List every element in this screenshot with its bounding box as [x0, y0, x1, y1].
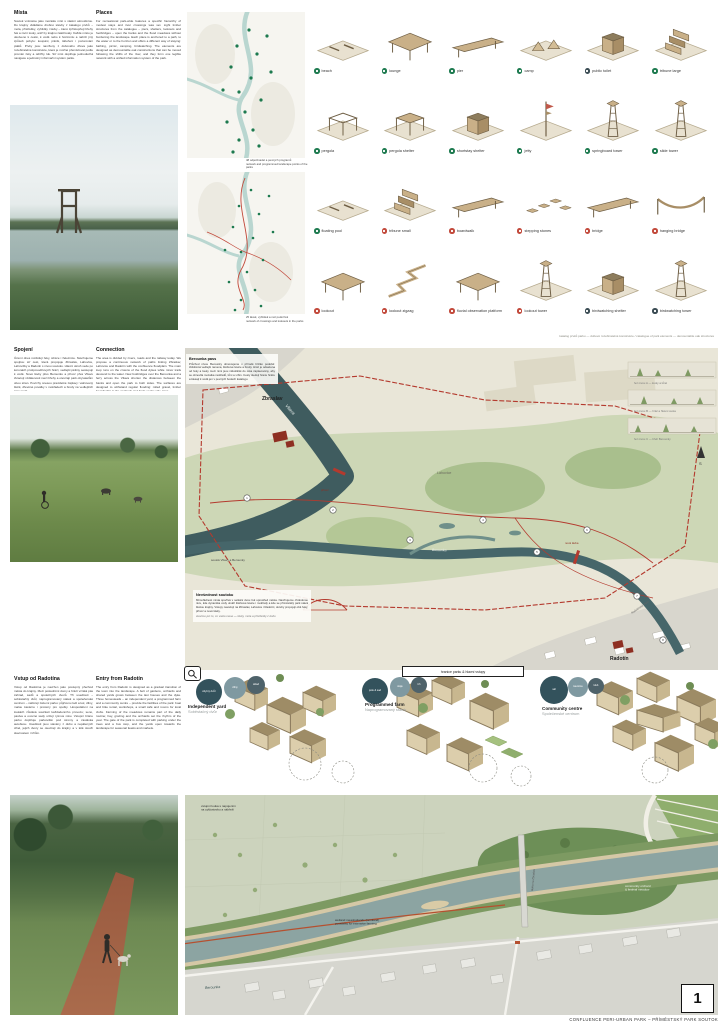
catalog-item: slide tower: [648, 90, 714, 170]
catalog-item-label: lookout zigzag: [389, 309, 413, 313]
section-entry-en: Entry from Radotín The entry from Radotí…: [96, 676, 181, 788]
body-entry: The entry from Radotín is designed as a …: [96, 685, 181, 731]
body-connection: The area is divided by rivers, roads and…: [96, 356, 181, 392]
catalog-item: pergola: [310, 90, 376, 170]
program-dot-icon: [257, 144, 260, 147]
heading-places: Places: [96, 10, 181, 16]
profile-caption: řez nivou B — hráz a hlavní cesta: [634, 409, 676, 413]
catalog-item: lookout zigzag: [378, 250, 444, 330]
program-bubble: kavárna: [568, 677, 588, 697]
map-label: Radotín: [610, 656, 629, 662]
program-dot-icon: [221, 88, 224, 91]
catalog-item: jetty: [513, 90, 579, 170]
catalog-item-label: camp: [524, 69, 533, 73]
profile-caption: řez nivou C — břeh Berounky: [634, 437, 671, 441]
jetty-icon: [513, 90, 579, 148]
heading-spojeni: Spojení: [14, 347, 93, 353]
program-dot-icon: [247, 28, 250, 31]
shortstay-shelter-icon: [445, 90, 511, 148]
map-label: nová lávka: [565, 541, 579, 545]
catalog-item: camp: [513, 10, 579, 90]
category-dot-icon: [585, 228, 591, 234]
minimap-programs: [187, 12, 305, 158]
category-dot-icon: [652, 148, 658, 154]
category-dot-icon: [382, 148, 388, 154]
catalog-item-label: bridge: [592, 229, 603, 233]
heading-vstup: Vstup od Radotína: [14, 676, 93, 682]
tribune-large-icon: [648, 10, 714, 68]
catalog-item: public toilet: [581, 10, 647, 90]
section-places-en: Places For recreational park-wide featur…: [96, 10, 181, 102]
catalog-item: boardwalk: [445, 170, 511, 250]
category-dot-icon: [449, 148, 455, 154]
catalog-item: tribune large: [648, 10, 714, 90]
competition-board: Místa Soutok vnímáme jako mozaiku míst s…: [0, 0, 724, 1024]
photo-lake-diving-tower: [10, 105, 178, 330]
aerial-label: community orchard& festival meadow: [625, 884, 651, 891]
catalog-item-label: slide tower: [660, 149, 678, 153]
catalog-item: hanging bridge: [648, 170, 714, 250]
catalog-item: pergola shelter: [378, 90, 444, 170]
element-catalog: beachloungepiercamppublic toilettribune …: [310, 10, 714, 330]
catalog-item: floating pool: [310, 170, 376, 250]
tribune-small-icon: [378, 170, 444, 228]
aerial-label: wetland meadowlands (farmland)possibilit…: [335, 918, 379, 925]
category-dot-icon: [449, 68, 455, 74]
catalog-item-label: fluvial observation platform: [457, 309, 502, 313]
catalog-item-label: birdwatching tower: [660, 309, 692, 313]
catalog-item: lounge: [378, 10, 444, 90]
cluster-title-block: Independent yardSoběstačný dvůr: [188, 704, 226, 714]
minimap-routes: [187, 172, 305, 314]
map-label: Lahovice: [437, 471, 451, 475]
birdwatching-tower-icon: [648, 250, 714, 308]
category-dot-icon: [585, 68, 591, 74]
svg-text:S: S: [699, 461, 702, 466]
catalog-item-label: hanging bridge: [660, 229, 685, 233]
catalog-item-label: lounge: [389, 69, 400, 73]
bridge-icon: [581, 170, 647, 228]
catalog-item: bridge: [581, 170, 647, 250]
catalog-item-label: beach: [322, 69, 332, 73]
hanging-bridge-icon: [648, 170, 714, 228]
category-dot-icon: [382, 308, 388, 314]
category-dot-icon: [652, 228, 658, 234]
category-dot-icon: [449, 228, 455, 234]
photo-red-path-dog-walk: [10, 795, 178, 1015]
profile-caption: řez nivou A — louky a tůně: [634, 381, 668, 385]
floating-pool-icon: [310, 170, 376, 228]
public-toilet-icon: [581, 10, 647, 68]
map-label: přívoz: [321, 488, 329, 492]
program-dot-icon: [259, 98, 262, 101]
catalog-item-label: pier: [457, 69, 463, 73]
catalog-item-label: jetty: [524, 149, 531, 153]
catalog-item-label: public toilet: [592, 69, 611, 73]
program-dot-icon: [235, 44, 238, 47]
panel-number: 1: [681, 984, 714, 1013]
body-spojeni: Území dnes rozdělují řeky, silnice i žel…: [14, 356, 93, 392]
category-dot-icon: [449, 308, 455, 314]
catalog-item: birdwatching tower: [648, 250, 714, 330]
magnifier-icon: [184, 666, 201, 681]
fluvial-observation-platform-icon: [445, 250, 511, 308]
body-places: For recreational park-wide features a sp…: [96, 19, 181, 61]
minimap-programs-caption: 48 odpočívadel a pevných programůnetwork…: [246, 159, 308, 170]
boardwalk-icon: [445, 170, 511, 228]
program-dot-icon: [249, 76, 252, 79]
lookout-zigzag-icon: [378, 250, 444, 308]
minimap-routes-caption: 25 lávek, vyhlídek a mol podél řeknetwor…: [246, 316, 308, 323]
pergola-icon: [310, 90, 376, 148]
category-dot-icon: [517, 148, 523, 154]
catalog-item-label: floating pool: [322, 229, 342, 233]
map-label: soutok Vltavy a Berounky: [211, 558, 245, 562]
slide-tower-icon: [648, 90, 714, 148]
catalog-caption: katalog prvků parku — dubové rozebíratel…: [420, 334, 714, 338]
program-dot-icon: [231, 150, 234, 153]
map-note-soutok: Nevšednost soutoku Mimořádnost místa spo…: [193, 590, 311, 622]
catalog-item: springboard tower: [581, 90, 647, 170]
category-dot-icon: [314, 148, 320, 154]
catalog-item-label: boardwalk: [457, 229, 474, 233]
lounge-icon: [378, 10, 444, 68]
category-dot-icon: [314, 308, 320, 314]
map-label: Zbraslav: [262, 396, 283, 402]
catalog-item-label: pergola: [322, 149, 335, 153]
catalog-item-label: tribune large: [660, 69, 681, 73]
program-bubble: stáje: [390, 677, 410, 697]
section-places-cs: Místa Soutok vnímáme jako mozaiku míst s…: [14, 10, 93, 102]
catalog-item: fluvial observation platform: [445, 250, 511, 330]
catalog-item-label: stepping stones: [524, 229, 551, 233]
lookout-tower-icon: [513, 250, 579, 308]
heading-mista: Místa: [14, 10, 93, 16]
pier-icon: [445, 10, 511, 68]
map-label: Berounka: [432, 548, 447, 552]
catalog-item-label: springboard tower: [592, 149, 622, 153]
footer-title: CONFLUENCE PERI-URBAN PARK – PŘÍMĚSTSKÝ …: [380, 1017, 718, 1022]
cluster-subtitle: Naprogramovaný statek: [365, 707, 406, 712]
program-bubble: obytný dvůr: [196, 679, 222, 705]
catalog-item: lookout tower: [513, 250, 579, 330]
map-note-berounka-pass: Berounka pass Průchod nivou Berounky obn…: [186, 354, 278, 384]
program-dot-icon: [237, 138, 240, 141]
catalog-item: pier: [445, 10, 511, 90]
beach-icon: [310, 10, 376, 68]
program-bubble: sklad: [247, 676, 265, 694]
catalog-item: stepping stones: [513, 170, 579, 250]
stepping-stones-icon: [513, 170, 579, 228]
program-bubble: dílny: [224, 677, 246, 699]
camp-icon: [513, 10, 579, 68]
program-dot-icon: [251, 128, 254, 131]
walker-dog-silhouette: [10, 795, 178, 1015]
section-connection-cs: Spojení Území dnes rozdělují řeky, silni…: [14, 347, 93, 391]
catalog-item-label: lookout tower: [524, 309, 547, 313]
category-dot-icon: [382, 68, 388, 74]
category-dot-icon: [517, 308, 523, 314]
program-dot-icon: [229, 65, 232, 68]
catalog-item: shortstay shelter: [445, 90, 511, 170]
catalog-item-label: lookout: [322, 309, 334, 313]
map-legend-badge: hranice parku & hlavní vstupy: [402, 666, 524, 677]
catalog-item-label: tribune small: [389, 229, 411, 233]
cluster-subtitle: Společenské centrum: [542, 711, 582, 716]
body-vstup: Vstup od Radotína je navržen jako postup…: [14, 685, 93, 735]
pergola-shelter-icon: [378, 90, 444, 148]
diving-tower-silhouette: [10, 105, 178, 330]
body-mista: Soutok vnímáme jako mozaiku míst s vlast…: [14, 19, 93, 61]
category-dot-icon: [382, 228, 388, 234]
catalog-item-label: birdwatching shelter: [592, 309, 626, 313]
program-dot-icon: [225, 120, 228, 123]
lookout-icon: [310, 250, 376, 308]
program-bubble: trh: [411, 677, 427, 693]
program-bubble: klub: [588, 678, 604, 694]
category-dot-icon: [585, 308, 591, 314]
heading-entry: Entry from Radotín: [96, 676, 181, 682]
section-connection-en: Connection The area is divided by rivers…: [96, 347, 181, 391]
aerial-plan: vstupní louka s napojenímna cyklostezku …: [185, 795, 718, 1015]
program-dot-icon: [269, 70, 272, 73]
aerial-label: vstupní louka s napojenímna cyklostezku …: [201, 804, 236, 811]
springboard-tower-icon: [581, 90, 647, 148]
master-plan-map: S VltavaBerounkaZbraslavRadotínLahovices…: [185, 348, 718, 670]
catalog-item-label: shortstay shelter: [457, 149, 485, 153]
program-dot-icon: [255, 52, 258, 55]
photo-meadow-cows: [10, 395, 178, 562]
catalog-item: tribune small: [378, 170, 444, 250]
section-entry-cs: Vstup od Radotína Vstup od Radotína je n…: [14, 676, 93, 788]
catalog-item-label: pergola shelter: [389, 149, 414, 153]
cluster-title-block: Programmed farmNaprogramovaný statek: [365, 702, 406, 712]
heading-connection: Connection: [96, 347, 181, 353]
program-dot-icon: [243, 110, 246, 113]
program-dot-icon: [237, 90, 240, 93]
program-dot-icon: [265, 34, 268, 37]
cluster-title-block: Community centreSpolečenské centrum: [542, 706, 582, 716]
catalog-item: lookout: [310, 250, 376, 330]
birdwatching-shelter-icon: [581, 250, 647, 308]
category-dot-icon: [652, 308, 658, 314]
category-dot-icon: [314, 228, 320, 234]
program-bubble: pole & sad: [362, 678, 388, 704]
catalog-item: beach: [310, 10, 376, 90]
catalog-item: birdwatching shelter: [581, 250, 647, 330]
category-dot-icon: [314, 68, 320, 74]
category-dot-icon: [652, 68, 658, 74]
category-dot-icon: [585, 148, 591, 154]
program-bubble: sál: [540, 676, 568, 704]
cluster-subtitle: Soběstačný dvůr: [188, 709, 226, 714]
category-dot-icon: [517, 68, 523, 74]
category-dot-icon: [517, 228, 523, 234]
meadow-silhouettes: [10, 395, 178, 562]
